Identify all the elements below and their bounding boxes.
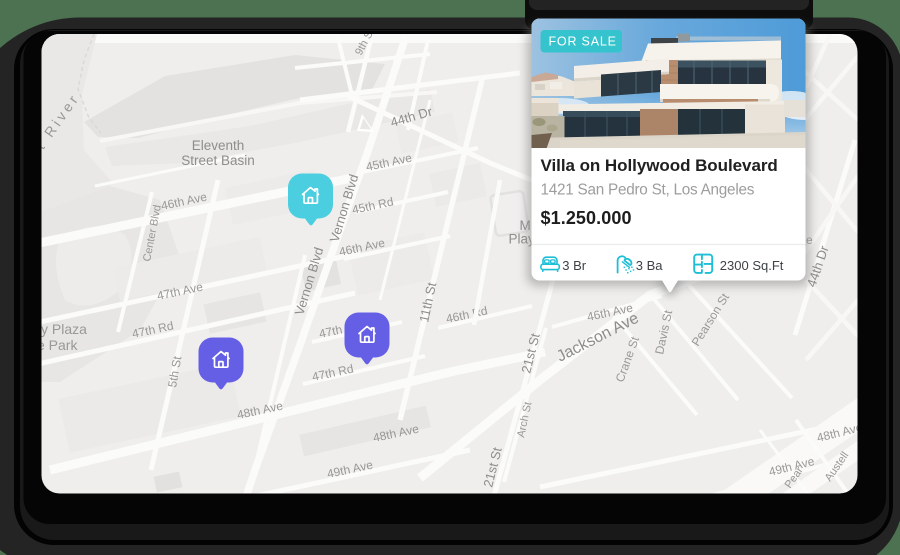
svg-text:e Park: e Park bbox=[37, 337, 78, 353]
svg-text:FOR SALE: FOR SALE bbox=[549, 34, 617, 48]
svg-text:1421 San Pedro St, Los Angeles: 1421 San Pedro St, Los Angeles bbox=[541, 181, 755, 198]
svg-text:$1.250.000: $1.250.000 bbox=[541, 208, 632, 228]
svg-text:y Plaza: y Plaza bbox=[41, 321, 87, 337]
svg-text:3 Ba: 3 Ba bbox=[636, 258, 664, 273]
svg-text:Eleventh: Eleventh bbox=[192, 138, 245, 153]
svg-text:3 Br: 3 Br bbox=[562, 258, 587, 273]
svg-text:Villa on Hollywood Boulevard: Villa on Hollywood Boulevard bbox=[541, 156, 778, 175]
svg-text:2300 Sq.Ft: 2300 Sq.Ft bbox=[720, 258, 784, 273]
svg-text:Street Basin: Street Basin bbox=[181, 153, 255, 168]
